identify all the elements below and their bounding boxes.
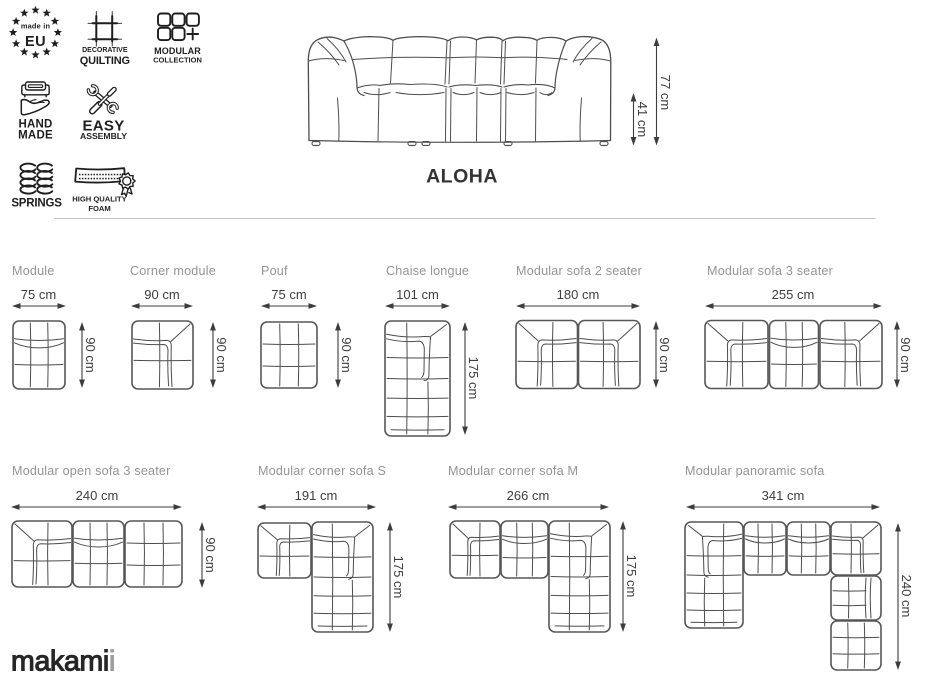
svg-text:90 cm: 90 cm <box>657 337 672 372</box>
svg-text:makamii: makamii <box>11 646 115 678</box>
svg-text:101 cm: 101 cm <box>396 287 439 302</box>
svg-text:Modular open sofa 3 seater: Modular open sofa 3 seater <box>12 464 171 478</box>
svg-text:90 cm: 90 cm <box>214 337 229 372</box>
svg-text:Chaise longue: Chaise longue <box>386 264 469 278</box>
svg-text:MODULAR: MODULAR <box>154 46 201 56</box>
svg-text:180 cm: 180 cm <box>557 287 600 302</box>
svg-text:175 cm: 175 cm <box>466 357 481 400</box>
svg-text:240 cm: 240 cm <box>899 575 914 618</box>
svg-text:Corner module: Corner module <box>130 264 216 278</box>
svg-text:HIGH QUALITY: HIGH QUALITY <box>72 195 126 204</box>
svg-text:Modular corner sofa S: Modular corner sofa S <box>258 464 386 478</box>
svg-text:75 cm: 75 cm <box>271 287 306 302</box>
svg-text:FOAM: FOAM <box>88 204 110 213</box>
svg-text:Modular corner sofa M: Modular corner sofa M <box>448 464 578 478</box>
svg-text:255 cm: 255 cm <box>772 287 815 302</box>
svg-text:175 cm: 175 cm <box>624 555 639 598</box>
svg-text:EU: EU <box>25 34 46 50</box>
svg-text:made in: made in <box>21 22 51 31</box>
svg-text:75 cm: 75 cm <box>21 287 56 302</box>
svg-text:41 cm: 41 cm <box>635 102 650 137</box>
svg-text:Modular panoramic sofa: Modular panoramic sofa <box>685 464 825 478</box>
svg-text:ASSEMBLY: ASSEMBLY <box>80 131 127 141</box>
svg-text:90 cm: 90 cm <box>83 337 98 372</box>
svg-text:266 cm: 266 cm <box>507 488 550 503</box>
svg-text:QUILTING: QUILTING <box>80 55 130 67</box>
svg-text:DECORATIVE: DECORATIVE <box>82 47 128 54</box>
svg-text:90 cm: 90 cm <box>339 337 354 372</box>
svg-text:240 cm: 240 cm <box>76 488 119 503</box>
svg-text:Modular sofa 2 seater: Modular sofa 2 seater <box>516 264 642 278</box>
svg-text:90 cm: 90 cm <box>144 287 179 302</box>
svg-text:Module: Module <box>12 264 55 278</box>
svg-text:341 cm: 341 cm <box>762 488 805 503</box>
svg-text:Modular sofa 3 seater: Modular sofa 3 seater <box>707 264 833 278</box>
svg-text:MADE: MADE <box>18 130 53 142</box>
svg-text:Pouf: Pouf <box>261 264 288 278</box>
svg-text:COLLECTION: COLLECTION <box>153 56 202 65</box>
svg-text:SPRINGS: SPRINGS <box>11 198 62 210</box>
svg-text:ALOHA: ALOHA <box>426 166 498 188</box>
svg-text:191 cm: 191 cm <box>295 488 338 503</box>
svg-text:175 cm: 175 cm <box>391 556 406 599</box>
svg-text:90 cm: 90 cm <box>898 337 913 372</box>
svg-text:77 cm: 77 cm <box>658 75 673 110</box>
svg-text:90 cm: 90 cm <box>203 537 218 572</box>
